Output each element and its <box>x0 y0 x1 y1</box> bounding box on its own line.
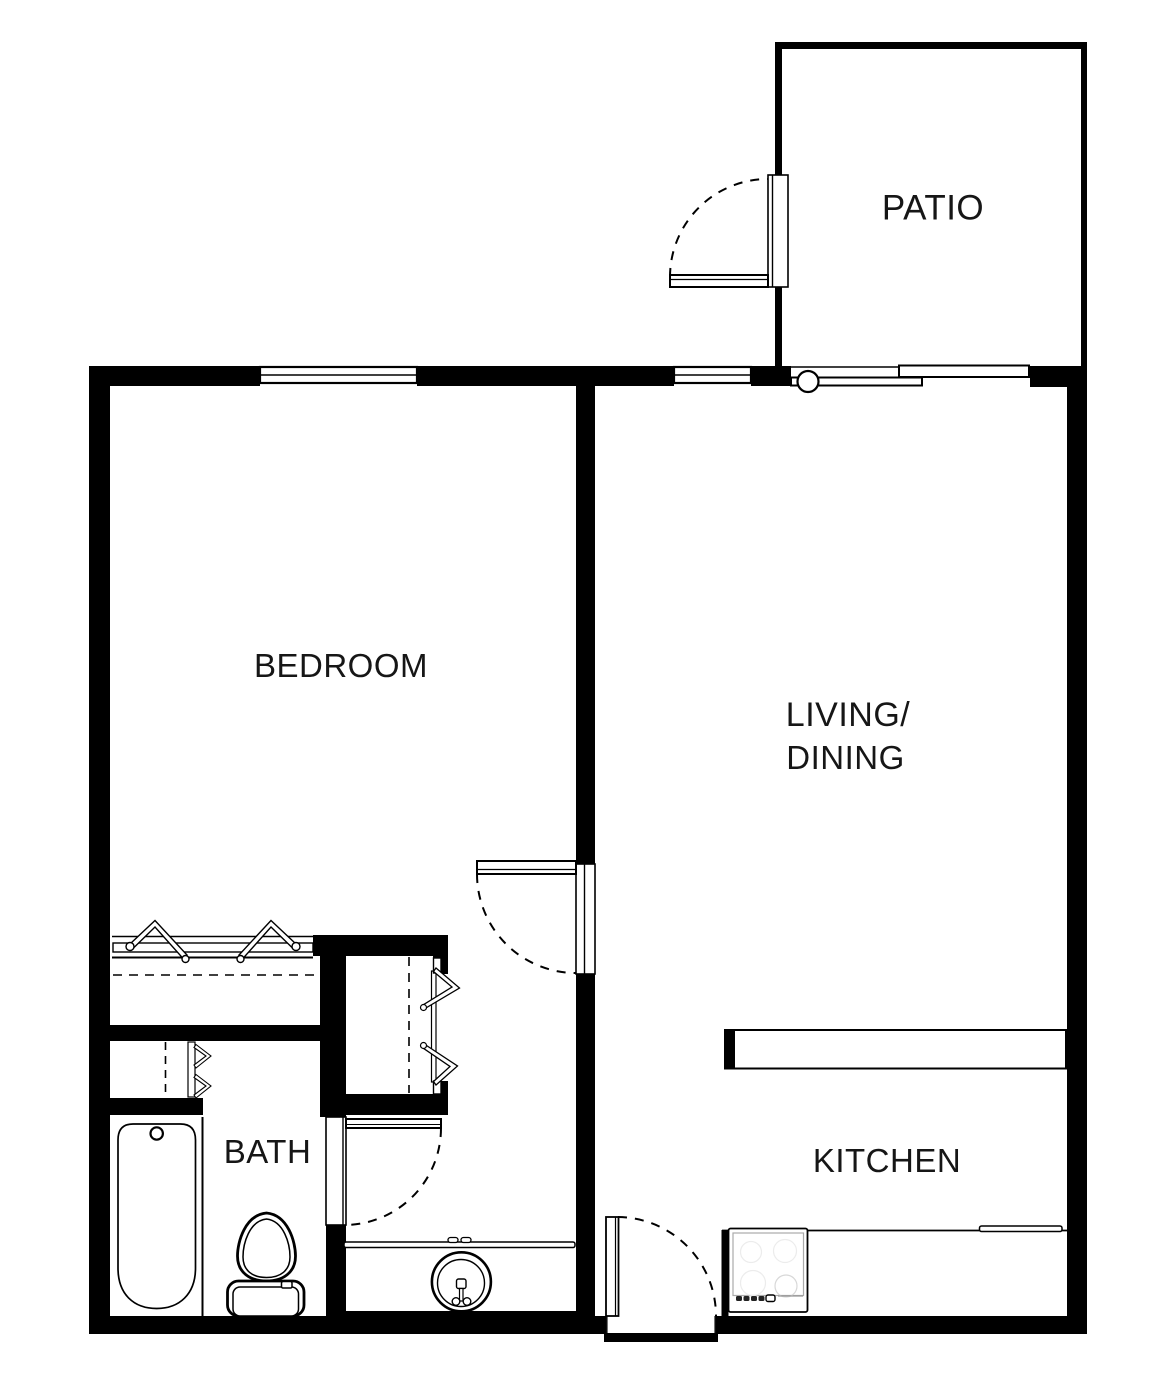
svg-text:LIVING/: LIVING/ <box>786 696 910 734</box>
svg-text:BEDROOM: BEDROOM <box>254 647 428 684</box>
svg-text:PATIO: PATIO <box>882 189 984 228</box>
svg-text:BATH: BATH <box>224 1133 312 1170</box>
svg-text:DINING: DINING <box>786 739 905 776</box>
svg-text:KITCHEN: KITCHEN <box>813 1142 961 1179</box>
